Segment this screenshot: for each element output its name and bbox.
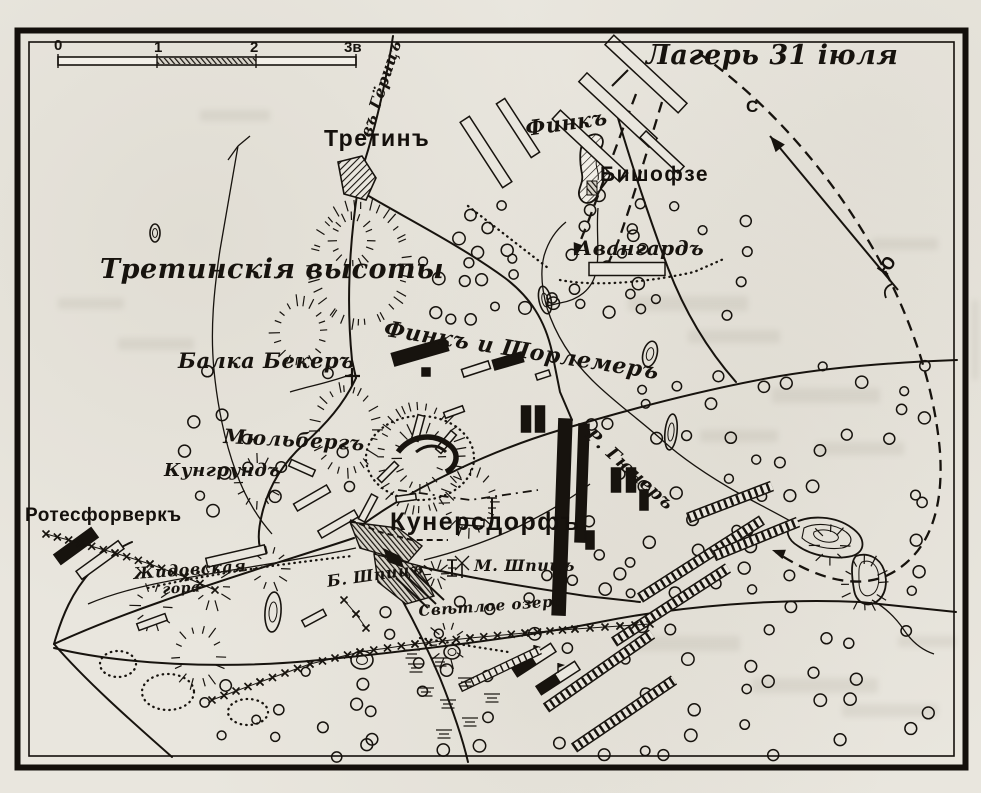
label-tretin-heights: Третинскія высоты [100,256,444,283]
label-camp-july31: Лагерь 31 іюля [646,42,898,69]
compass-north-letter: С [746,98,760,115]
map-frame [18,31,966,768]
label-m-spitz: М. Шпицъ [474,558,575,574]
compass-arrow [770,136,898,298]
map-artwork [0,0,981,793]
label-kunersdorf: Кунерсдорфъ [390,510,580,535]
label-avantgarde: Авангардъ [576,238,704,258]
scale-tick-2: 2 [250,40,258,55]
scale-tick-3: 3в [344,40,362,55]
scale-tick-0: 0 [54,38,62,53]
scale-bar [58,54,356,68]
label-balka-beker: Балка Бекеръ [178,350,355,371]
map-symbols [43,70,654,738]
roads-and-routes [54,36,957,762]
label-rotes-vorwerk: Ротесфорверкъ [25,506,182,525]
scale-tick-1: 1 [154,40,162,55]
battle-map-page: Лагерь 31 іюля въ Гёрицъ Третинъ Финкъ Б… [0,0,981,793]
label-bischofsee: Бишофзе [600,164,709,185]
label-kuhgrund: Кунгрундъ [164,462,281,480]
label-tretin: Третинъ [324,127,430,150]
label-zhidovskaya-gora-line2: гора [162,580,201,597]
